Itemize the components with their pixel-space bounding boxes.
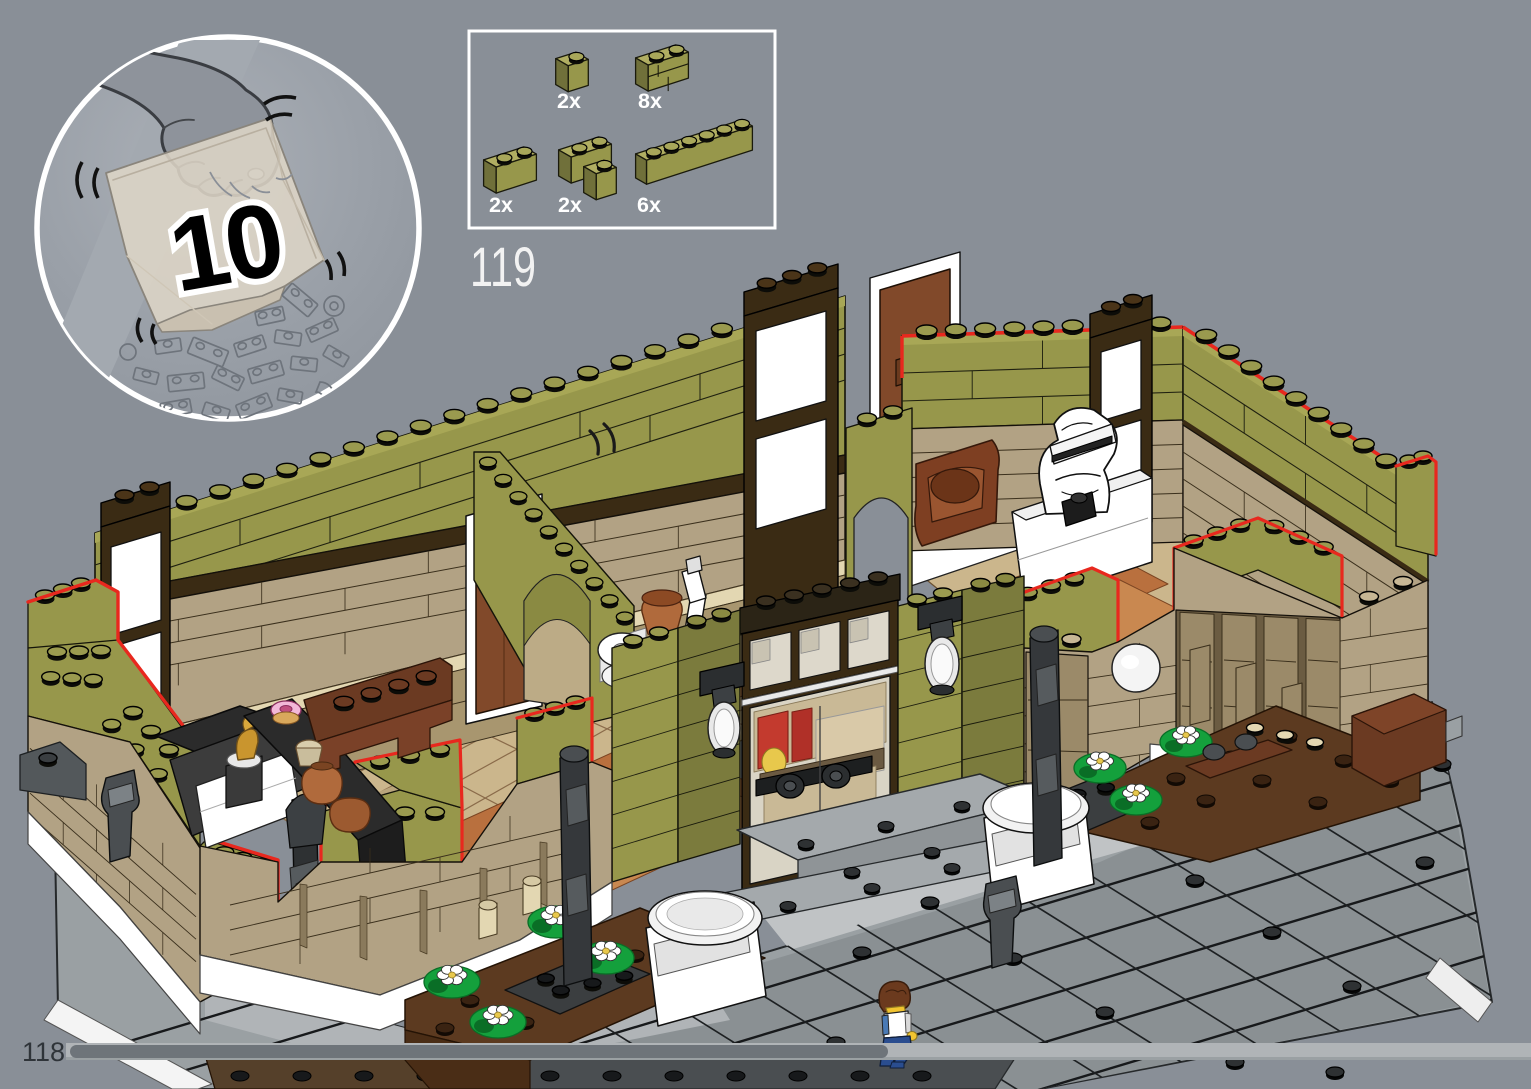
svg-text:2x: 2x	[558, 193, 582, 217]
svg-text:8x: 8x	[638, 89, 662, 113]
svg-text:2x: 2x	[557, 89, 581, 113]
svg-text:10: 10	[161, 181, 289, 314]
svg-text:119: 119	[470, 235, 536, 298]
svg-text:118: 118	[22, 1037, 65, 1067]
svg-text:6x: 6x	[637, 193, 661, 217]
svg-text:2x: 2x	[489, 193, 513, 217]
